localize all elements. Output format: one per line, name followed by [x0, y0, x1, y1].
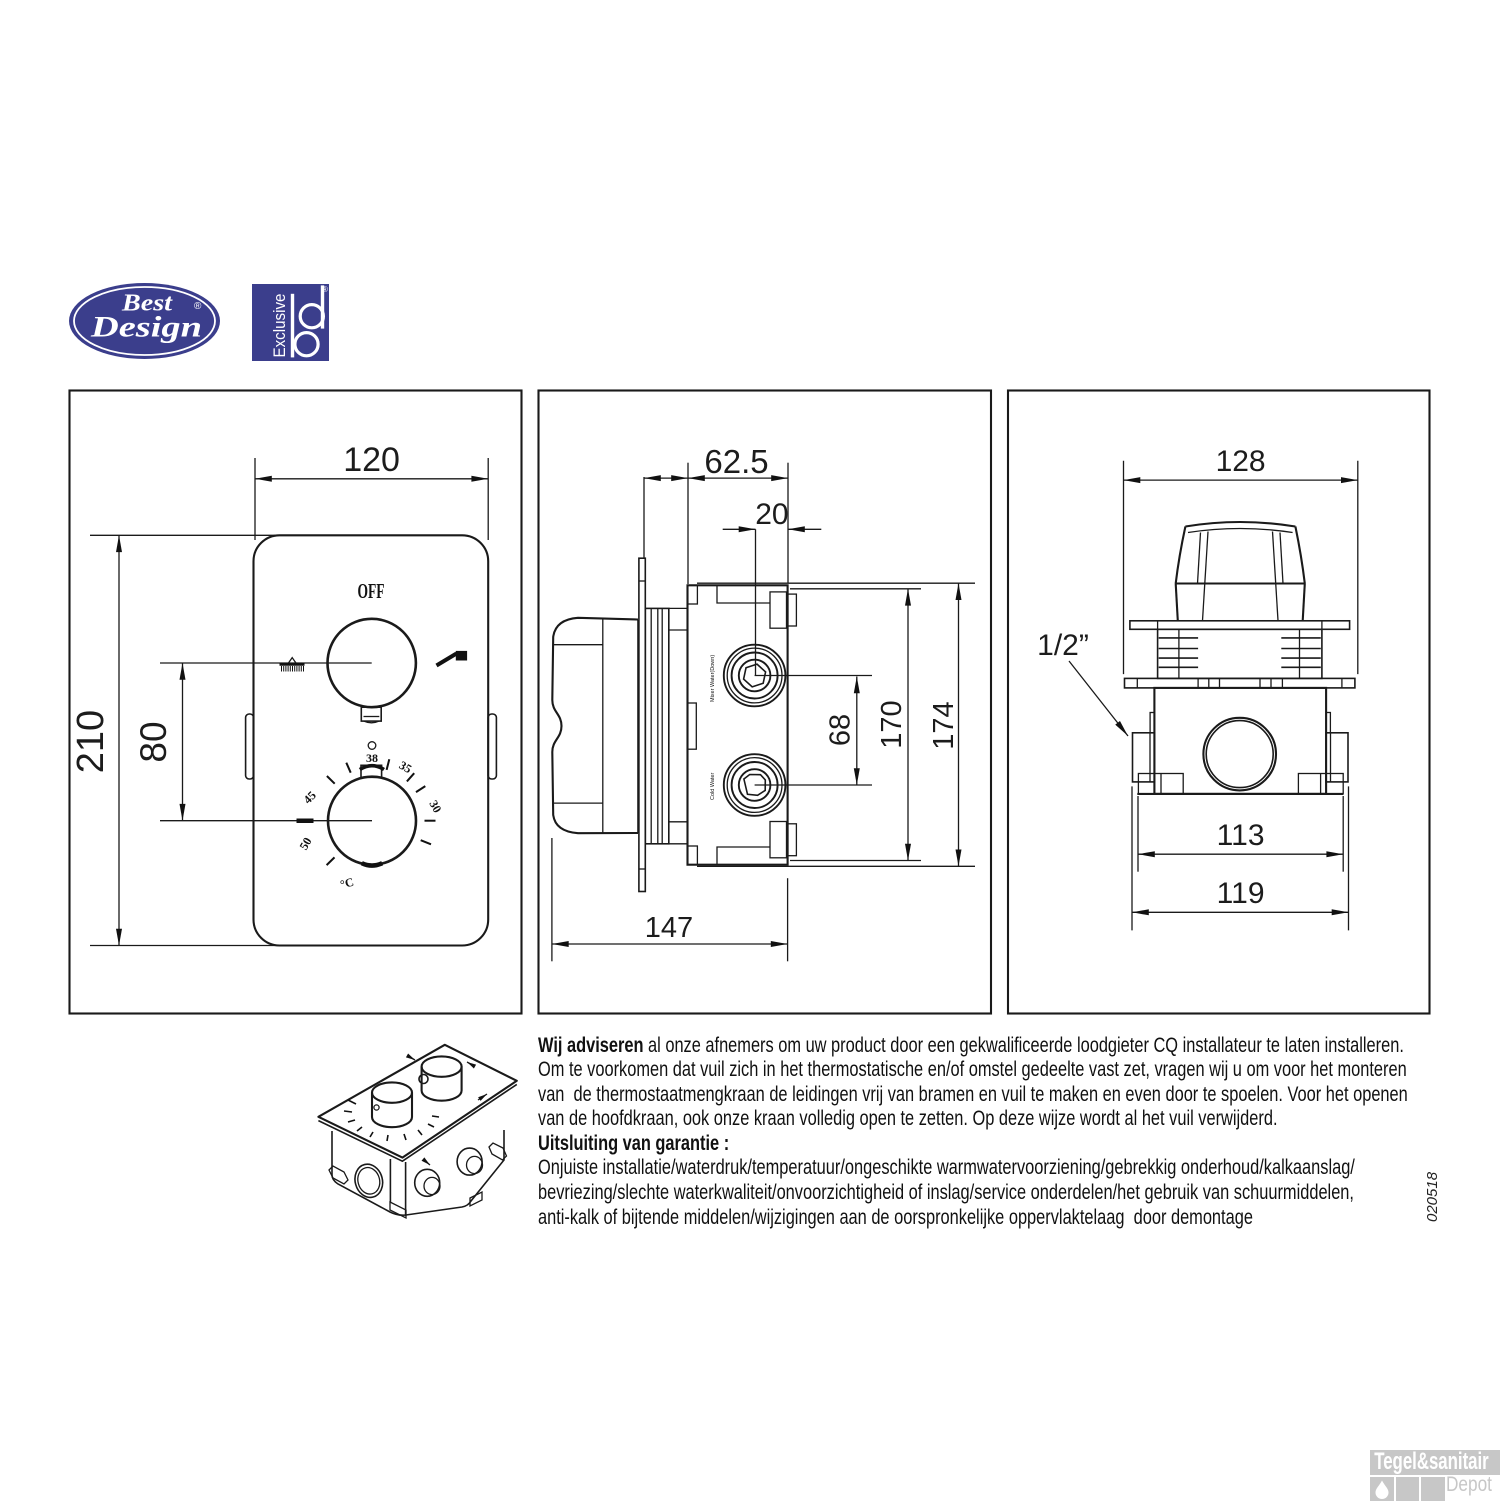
svg-text:Mixer Water(Down): Mixer Water(Down) — [710, 655, 716, 702]
svg-text:210: 210 — [70, 710, 112, 773]
svg-text:147: 147 — [645, 912, 693, 944]
svg-text:119: 119 — [1217, 877, 1265, 910]
svg-text:120: 120 — [343, 441, 400, 479]
svg-text:®: ® — [322, 285, 328, 294]
svg-text:45: 45 — [300, 788, 318, 806]
svg-text:80: 80 — [133, 721, 174, 762]
svg-text:Design: Design — [90, 311, 202, 344]
svg-text:20: 20 — [755, 498, 788, 531]
svg-text:°C: °C — [339, 875, 356, 892]
svg-text:128: 128 — [1216, 445, 1266, 478]
svg-text:Cold Water: Cold Water — [710, 773, 716, 800]
svg-text:170: 170 — [876, 700, 908, 748]
svg-text:Exclusive: Exclusive — [271, 294, 289, 358]
svg-text:113: 113 — [1217, 819, 1265, 852]
svg-text:50: 50 — [296, 835, 314, 852]
svg-text:30: 30 — [426, 798, 444, 815]
svg-text:38: 38 — [366, 751, 378, 765]
svg-text:68: 68 — [825, 714, 857, 746]
svg-text:62.5: 62.5 — [704, 443, 768, 480]
svg-text:35: 35 — [397, 758, 414, 776]
svg-text:®: ® — [194, 301, 202, 312]
svg-text:OFF: OFF — [358, 579, 385, 603]
svg-text:174: 174 — [928, 701, 960, 749]
svg-text:1/2”: 1/2” — [1037, 629, 1089, 662]
